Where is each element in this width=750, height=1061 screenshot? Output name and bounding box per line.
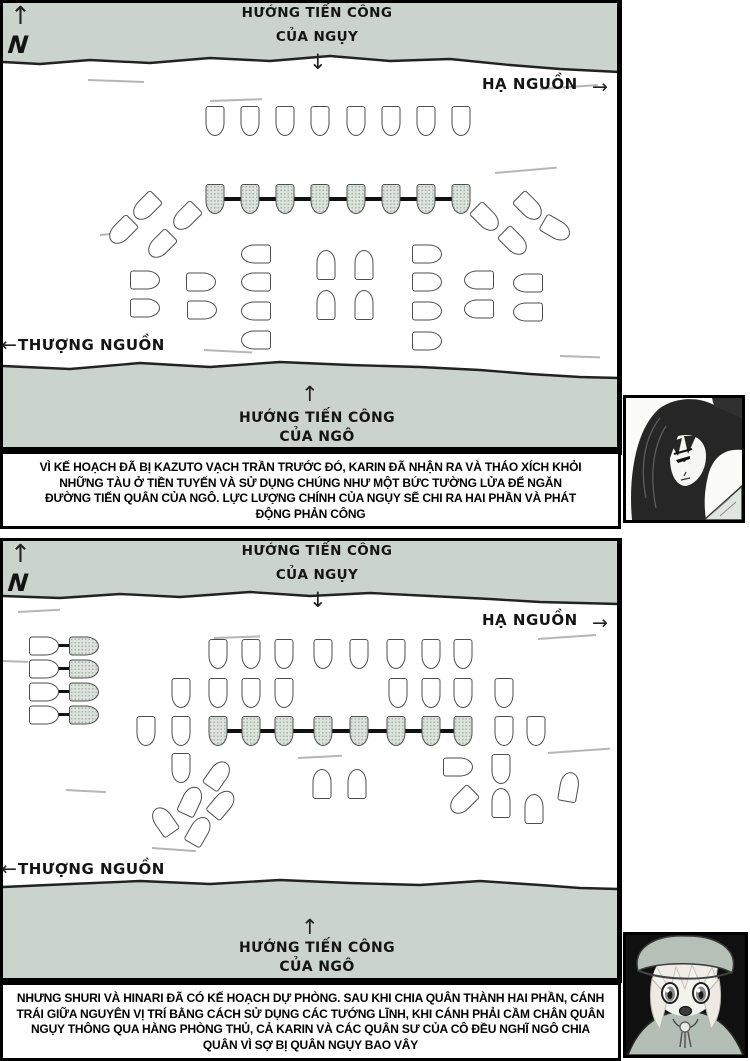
warship [454, 639, 473, 669]
downstream-label: HẠ NGUỒN [482, 612, 578, 629]
chained-fire-ship [275, 716, 294, 746]
warship [276, 106, 295, 136]
chained-fire-ship [452, 184, 471, 214]
wu-attack-arrow-icon: ↑ [301, 917, 319, 938]
warship [172, 716, 191, 746]
warship [422, 639, 441, 669]
warship [186, 273, 216, 292]
warship [29, 637, 59, 656]
chained-fire-ship [69, 660, 99, 679]
narration-line: NHỮNG TÀU Ở TIỀN TUYẾN VÀ SỬ DỤNG CHÚNG … [3, 476, 618, 492]
warship [242, 678, 261, 708]
wei-attack-direction-line1: HƯỚNG TIẾN CÔNG [0, 6, 634, 22]
warship [513, 274, 543, 293]
warship [209, 639, 228, 669]
warship [317, 290, 336, 320]
warship [187, 301, 217, 320]
warship [275, 678, 294, 708]
downstream-arrow-icon: → [592, 78, 608, 97]
chained-fire-ship [209, 716, 228, 746]
warship [241, 331, 271, 350]
narration-box-1: VÌ KẾ HOẠCH ĐÃ BỊ KAZUTO VẠCH TRẦN TRƯỚC… [0, 447, 621, 529]
wu-attack-direction-line2: CỦA NGÔ [0, 429, 634, 445]
wei-attack-direction-line2: CỦA NGỤY [0, 568, 634, 584]
wu-attack-direction-line1: HƯỚNG TIẾN CÔNG [0, 940, 634, 956]
narration-line: VÌ KẾ HOẠCH ĐÃ BỊ KAZUTO VẠCH TRẦN TRƯỚC… [3, 460, 618, 476]
warship [29, 683, 59, 702]
beret-girl-character-art [626, 935, 745, 1055]
warship [29, 660, 59, 679]
downstream-label: HẠ NGUỒN [482, 76, 578, 93]
warship [525, 794, 544, 824]
wei-attack-arrow-icon: ↓ [309, 590, 327, 611]
narration-line: ĐỘNG PHẢN CÔNG [3, 507, 618, 523]
chained-fire-ship [206, 184, 225, 214]
warship [172, 753, 191, 783]
warship [513, 303, 543, 322]
warship [137, 716, 156, 746]
warship [492, 788, 511, 818]
warship [454, 678, 473, 708]
warship [130, 299, 160, 318]
warship [241, 302, 271, 321]
chained-fire-ship [387, 716, 406, 746]
warship [355, 290, 374, 320]
warship [317, 250, 336, 280]
warship [495, 678, 514, 708]
warship [209, 678, 228, 708]
narration-line: NHƯNG SHURI VÀ HINARI ĐÃ CÓ KẾ HOẠCH DỰ … [3, 991, 618, 1007]
warship [412, 332, 442, 351]
chained-fire-ship [276, 184, 295, 214]
warship [464, 300, 494, 319]
warship [347, 106, 366, 136]
warship [130, 271, 160, 290]
warship [495, 716, 514, 746]
chained-fire-ship [242, 716, 261, 746]
upstream-arrow-icon: ← [1, 860, 17, 879]
warship [241, 273, 271, 292]
warship [412, 302, 442, 321]
chained-fire-ship [382, 184, 401, 214]
warship [452, 106, 471, 136]
downstream-arrow-icon: → [592, 614, 608, 633]
warship [275, 639, 294, 669]
chained-fire-ship [350, 716, 369, 746]
warship [443, 758, 473, 777]
wu-attack-direction-line2: CỦA NGÔ [0, 959, 634, 975]
dark-haired-character-art [626, 398, 742, 520]
narration-line: QUÂN VÌ SỢ BỊ QUÂN NGỤY BAO VÂY [3, 1038, 618, 1054]
warship [313, 769, 332, 799]
chained-fire-ship [314, 716, 333, 746]
upstream-label: THƯỢNG NGUỒN [18, 337, 165, 354]
wu-attack-direction-line1: HƯỚNG TIẾN CÔNG [0, 410, 634, 426]
chained-fire-ship [417, 184, 436, 214]
warship [417, 106, 436, 136]
wei-attack-arrow-icon: ↓ [309, 52, 327, 73]
chained-fire-ship [69, 683, 99, 702]
warship [382, 106, 401, 136]
wei-attack-direction-line1: HƯỚNG TIẾN CÔNG [0, 544, 634, 560]
chained-fire-ship [311, 184, 330, 214]
chained-fire-ship [347, 184, 366, 214]
warship [412, 273, 442, 292]
warship [464, 271, 494, 290]
warship [242, 639, 261, 669]
chained-fire-ship [422, 716, 441, 746]
warship [492, 754, 511, 784]
chained-fire-ship [69, 706, 99, 725]
narration-line: TRÁI GIỮA NGUYÊN VỊ TRÍ BẰNG CÁCH SỬ DỤN… [3, 1007, 618, 1023]
warship [355, 250, 374, 280]
warship [311, 106, 330, 136]
warship [389, 678, 408, 708]
warship [348, 769, 367, 799]
warship [241, 245, 271, 264]
warship [387, 639, 406, 669]
narration-box-2: NHƯNG SHURI VÀ HINARI ĐÃ CÓ KẾ HOẠCH DỰ … [0, 978, 621, 1061]
narration-line: NGỤY THÔNG QUA HÀNG PHÒNG THỦ, CẢ KARIN … [3, 1022, 618, 1038]
warship [422, 678, 441, 708]
warship [29, 706, 59, 725]
warship [350, 639, 369, 669]
upstream-label: THƯỢNG NGUỒN [18, 861, 165, 878]
warship [172, 678, 191, 708]
warship [206, 106, 225, 136]
chained-fire-ship [241, 184, 260, 214]
wu-attack-arrow-icon: ↑ [301, 384, 319, 405]
chained-fire-ship [69, 637, 99, 656]
warship [241, 106, 260, 136]
upstream-arrow-icon: ← [1, 336, 17, 355]
warship [314, 639, 333, 669]
warship [412, 245, 442, 264]
narration-line: ĐƯỜNG TIẾN QUÂN CỦA NGÔ. LỰC LƯỢNG CHÍNH… [3, 491, 618, 507]
warship [527, 716, 546, 746]
character-portrait-karin [623, 395, 745, 523]
manga-page: ↑ N HƯỚNG TIẾN CÔNG CỦA NGỤY ↓ HẠ NGUỒN … [0, 0, 750, 1061]
wei-attack-direction-line2: CỦA NGỤY [0, 30, 634, 46]
character-portrait-girl-beret [623, 932, 748, 1058]
chained-fire-ship [454, 716, 473, 746]
